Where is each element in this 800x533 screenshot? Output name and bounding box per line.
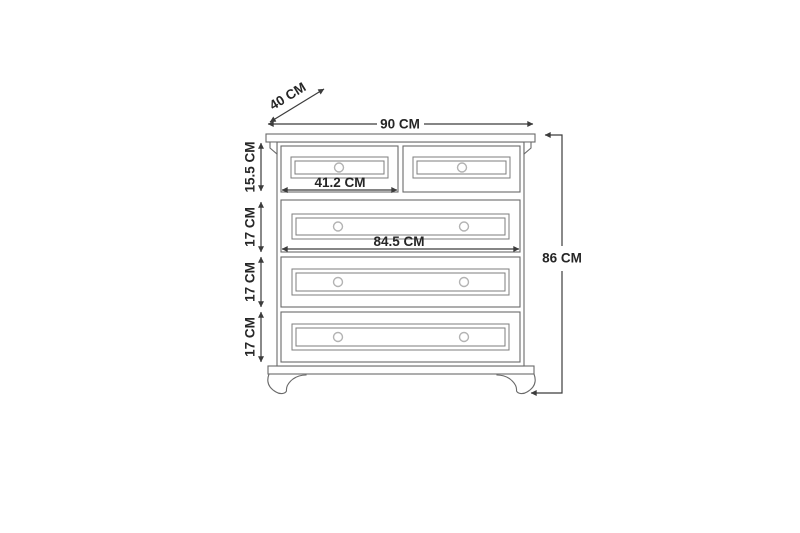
drawer-front <box>281 312 520 362</box>
dimension-row4-height: 17 CM <box>243 312 261 362</box>
dimension-row2-height: 17 CM <box>243 202 261 252</box>
left-foot <box>268 374 306 394</box>
drawer-knob-right <box>460 333 469 342</box>
top-slab <box>266 134 535 142</box>
dimension-height-label: 86 CM <box>542 251 582 266</box>
dimension-diagram-canvas: 40 CM 90 CM 86 CM 15.5 CM 17 CM 17 CM <box>0 0 800 533</box>
right-foot <box>497 374 535 394</box>
right-top-molding <box>524 142 531 154</box>
drawer-knob-right <box>460 278 469 287</box>
dimension-row4-label: 17 CM <box>243 317 258 357</box>
dimension-top-row-label: 15.5 CM <box>243 141 258 192</box>
dimension-width: 90 CM <box>268 117 533 132</box>
dimension-height: 86 CM <box>531 135 582 393</box>
dimension-height-leader-bottom <box>531 271 562 393</box>
chest-of-drawers-drawing <box>266 134 535 394</box>
dimension-depth-label: 40 CM <box>267 79 309 113</box>
left-top-molding <box>270 142 277 154</box>
dimension-wide-drawer-label: 84.5 CM <box>373 234 424 249</box>
dimension-row3-height: 17 CM <box>243 257 261 307</box>
dimension-small-drawer-label: 41.2 CM <box>314 175 365 190</box>
dimension-row3-label: 17 CM <box>243 262 258 302</box>
dimension-row2-label: 17 CM <box>243 207 258 247</box>
drawer-knob <box>458 163 467 172</box>
chest-of-drawers-dimension-diagram: 40 CM 90 CM 86 CM 15.5 CM 17 CM 17 CM <box>0 0 800 533</box>
drawer-knob-left <box>334 333 343 342</box>
wide-drawer-2 <box>281 257 520 307</box>
dimension-depth: 40 CM <box>267 79 324 122</box>
dimension-height-leader-top <box>545 135 562 246</box>
base-molding <box>268 366 534 374</box>
drawer-knob-left <box>334 278 343 287</box>
dimension-top-row-height: 15.5 CM <box>243 141 261 192</box>
wide-drawer-3 <box>281 312 520 362</box>
drawer-knob-right <box>460 222 469 231</box>
drawer-front <box>281 257 520 307</box>
drawer-knob-left <box>334 222 343 231</box>
dimension-width-label: 90 CM <box>380 117 420 132</box>
small-drawer-right <box>403 146 520 192</box>
drawer-knob <box>335 163 344 172</box>
